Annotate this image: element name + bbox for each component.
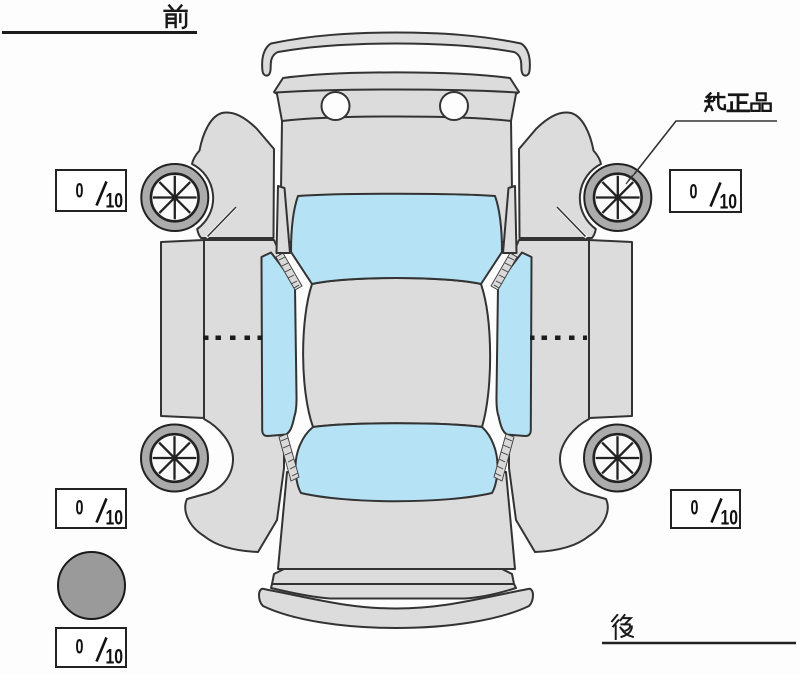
svg-text:0: 0	[76, 496, 84, 519]
svg-text:0: 0	[690, 180, 698, 203]
svg-text:10: 10	[106, 644, 124, 668]
svg-text:0: 0	[691, 496, 699, 519]
svg-text:10: 10	[106, 188, 124, 212]
svg-text:0: 0	[76, 179, 84, 202]
svg-text:10: 10	[106, 505, 124, 529]
svg-text:10: 10	[721, 505, 739, 529]
svg-text:10: 10	[720, 189, 738, 213]
svg-text:0: 0	[76, 635, 84, 658]
